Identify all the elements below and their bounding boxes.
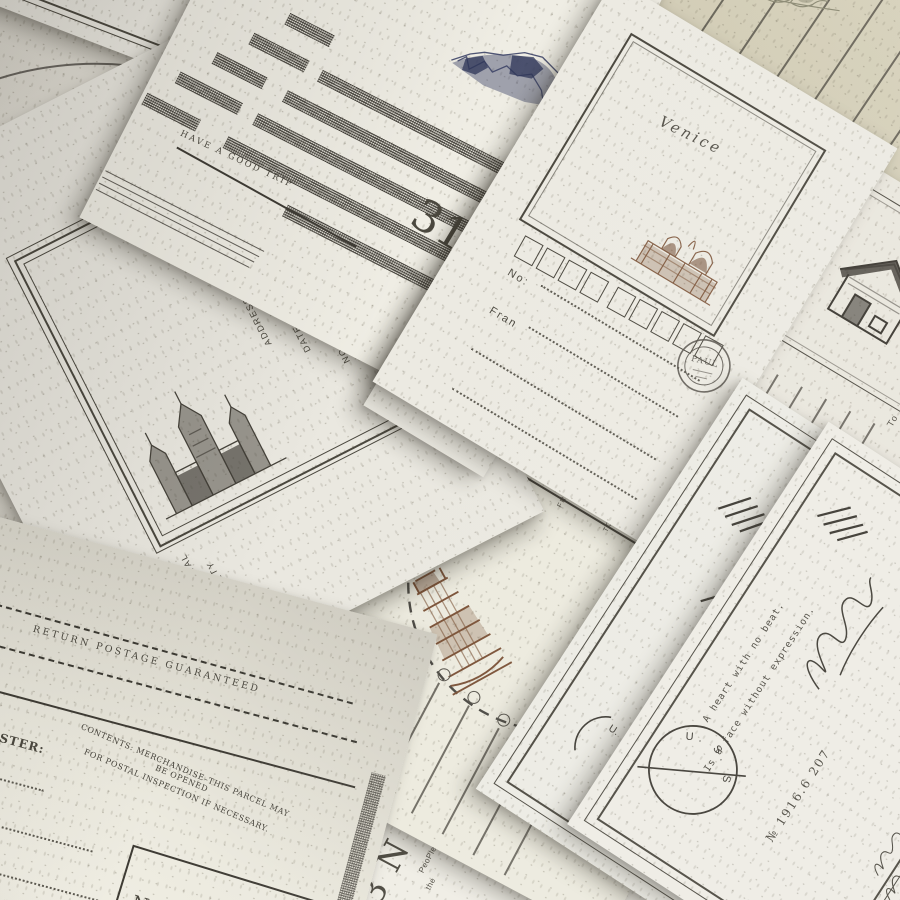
no-field-label: No: — [505, 267, 531, 289]
botanical-branch-icon — [731, 0, 850, 61]
contents-notice: CONTENTS: MERCHANDISE–THIS PARCEL MAY BE… — [64, 719, 297, 841]
halftone-bar-short — [142, 93, 201, 132]
contents-notice-line: CONTENTS: MERCHANDISE–THIS PARCEL MAY BE… — [69, 719, 297, 829]
no-prefix: NO. — [129, 891, 177, 900]
fran-field-label: Fran — [487, 305, 519, 331]
mail-box — [579, 272, 609, 303]
halftone-bar-short — [248, 33, 309, 73]
dotted-line — [0, 845, 113, 900]
dotted-line — [0, 754, 44, 792]
dotted-line — [0, 800, 93, 852]
parcel-serial-number: 00283 — [172, 893, 307, 900]
svg-text:U.: U. — [606, 723, 621, 738]
halftone-bar-short — [175, 71, 243, 114]
dotted-line — [528, 326, 678, 417]
paul-postmark-stamp: PAUL — [668, 330, 740, 402]
postmaster-label: STER: — [0, 731, 46, 756]
halftone-bar-short — [212, 52, 268, 89]
serial-box: NO. 00283 — [97, 845, 361, 900]
photo-vintage-postcards-scene: DATE NO — [0, 0, 900, 900]
contents-notice-line: FOR POSTAL INSPECTION IF NECESSARY. — [64, 740, 288, 842]
to-label: To — [885, 412, 900, 428]
dotted-line — [471, 348, 656, 460]
halftone-bar-short — [284, 13, 334, 47]
dashed-rule — [0, 601, 353, 704]
svg-text:PAUL: PAUL — [690, 354, 719, 370]
